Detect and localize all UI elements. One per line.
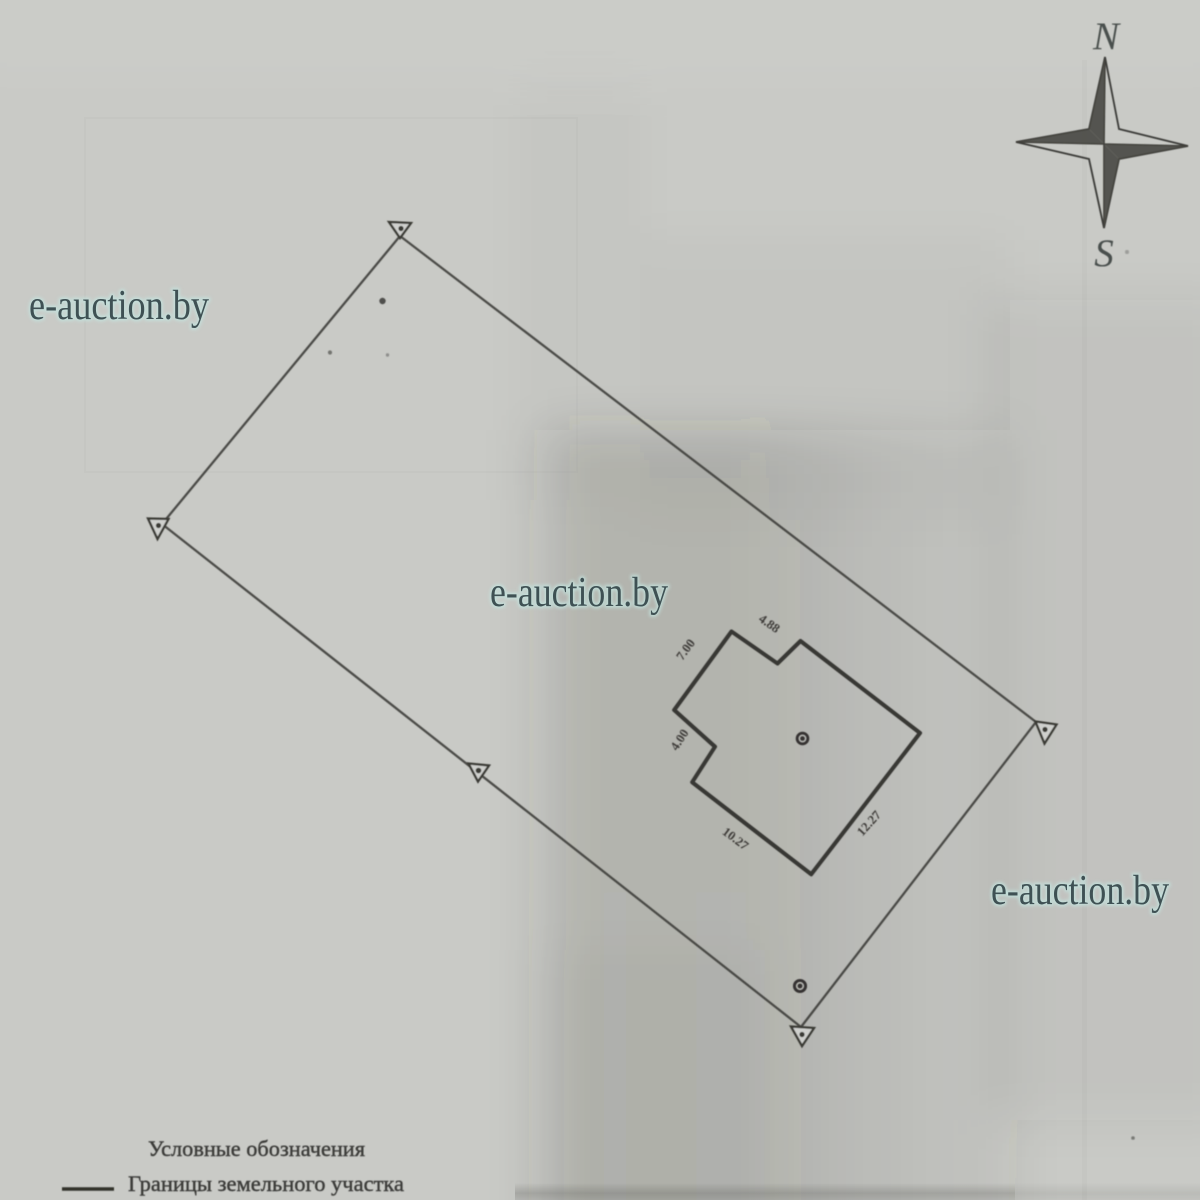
svg-text:e-auction.by: e-auction.by xyxy=(29,282,210,329)
svg-text:e-auction.by: e-auction.by xyxy=(490,569,669,616)
svg-text:Условные обозначения: Условные обозначения xyxy=(148,1136,365,1161)
svg-text:N: N xyxy=(1092,15,1121,58)
svg-text:Границы земельного участка: Границы земельного участка xyxy=(128,1171,404,1196)
svg-text:e-auction.by: e-auction.by xyxy=(991,867,1170,914)
svg-text:S: S xyxy=(1094,232,1114,275)
